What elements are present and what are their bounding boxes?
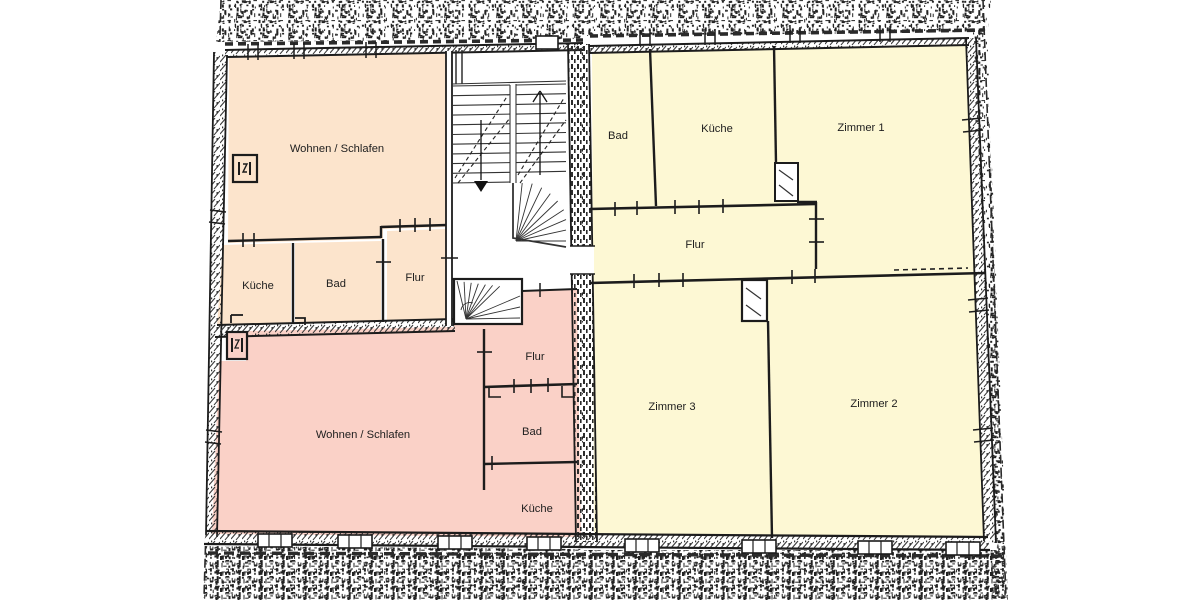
svg-text:Bad: Bad <box>326 278 346 290</box>
svg-text:Bad: Bad <box>522 426 542 438</box>
svg-text:Zimmer 2: Zimmer 2 <box>850 398 897 410</box>
svg-text:Küche: Küche <box>242 280 274 292</box>
svg-text:Küche: Küche <box>701 123 733 135</box>
svg-text:Flur: Flur <box>685 239 705 251</box>
svg-text:Bad: Bad <box>608 130 628 142</box>
svg-text:Wohnen / Schlafen: Wohnen / Schlafen <box>290 143 384 155</box>
svg-text:Flur: Flur <box>405 272 425 284</box>
svg-text:Flur: Flur <box>525 351 545 363</box>
svg-text:Wohnen / Schlafen: Wohnen / Schlafen <box>316 429 410 441</box>
svg-text:Zimmer 3: Zimmer 3 <box>648 401 695 413</box>
svg-text:Küche: Küche <box>521 503 553 515</box>
svg-text:Zimmer 1: Zimmer 1 <box>837 122 884 134</box>
